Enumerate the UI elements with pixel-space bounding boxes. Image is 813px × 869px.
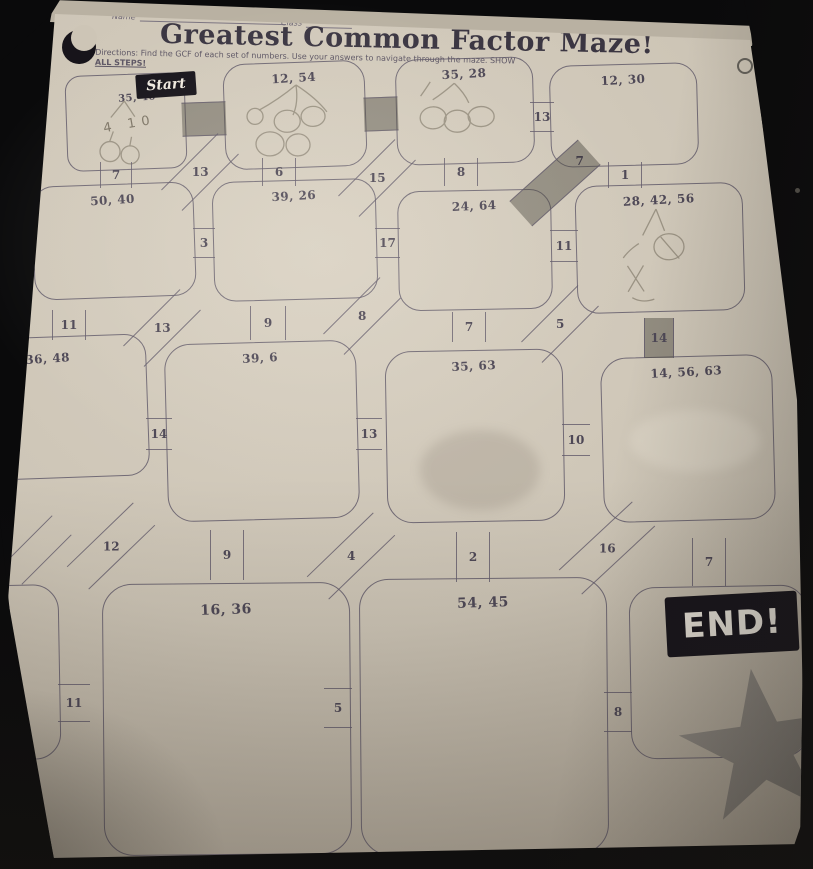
- maze-node-12-54: 12, 54: [222, 60, 368, 171]
- corridor-value: 8: [614, 705, 622, 719]
- maze-node-35-28: 35, 28: [395, 56, 536, 166]
- pen-mark: [62, 30, 92, 58]
- corridor-value: 2: [469, 550, 477, 564]
- node-pair: 35, 63: [386, 355, 562, 377]
- corridor-value: 1: [621, 168, 629, 182]
- end-badge: END!: [665, 591, 800, 658]
- corridor: 11: [58, 684, 90, 722]
- maze-node-39-6: 39, 6: [164, 340, 361, 523]
- corridor: 16: [559, 501, 655, 594]
- corridor-value: 9: [223, 548, 231, 562]
- maze-node-36-48: 36, 48: [0, 333, 150, 481]
- corridor: 11: [52, 310, 86, 340]
- corridor: 14: [146, 418, 172, 450]
- corridor-value: 3: [200, 236, 208, 250]
- corridor-value: 7: [705, 555, 713, 569]
- corridor: 12: [67, 503, 155, 590]
- corridor-value: 8: [358, 309, 366, 323]
- corridor-value: 4: [347, 549, 355, 563]
- corridor-value: 13: [154, 321, 171, 335]
- corridor: 10: [562, 424, 590, 456]
- corridor: 3: [193, 228, 215, 258]
- corridor-value: 6: [275, 165, 283, 179]
- corridor: 5: [324, 688, 352, 728]
- corridor-value: 11: [61, 318, 78, 332]
- corridor-value: 7: [112, 168, 120, 182]
- corridor-value: 11: [556, 239, 573, 253]
- glare-ring: [737, 58, 753, 74]
- corridor: 8: [604, 692, 632, 732]
- corridor-value: 11: [66, 696, 83, 710]
- corridor: 7: [692, 538, 726, 586]
- corridor: 6: [262, 158, 296, 186]
- pencil-work: [396, 57, 537, 167]
- node-pair: 39, 6: [165, 346, 355, 370]
- node-pair: 12, 30: [550, 69, 697, 91]
- corridor-value: 13: [534, 110, 551, 124]
- glare-dot: [795, 188, 800, 193]
- corridor: 9: [210, 530, 244, 580]
- corridor: 9: [250, 306, 286, 340]
- corridor: 1: [608, 162, 642, 188]
- corridor-value: 12: [103, 539, 120, 553]
- corridor-value: 16: [599, 541, 616, 555]
- node-pair: 54, 45: [360, 591, 606, 616]
- corridor: 2: [456, 532, 490, 582]
- corridor: 13: [356, 418, 382, 450]
- corridor-value: 14: [651, 331, 668, 345]
- corridor: [2, 515, 71, 584]
- directions-line2: ALL STEPS!: [95, 58, 146, 68]
- corridor: 11: [550, 230, 578, 262]
- worksheet-paper: Name Class Date Greatest Common Factor M…: [0, 0, 813, 869]
- maze-node-left-edge: [0, 584, 62, 761]
- corridor: [363, 96, 398, 131]
- corridor-value: 17: [379, 236, 396, 250]
- corridor: [181, 101, 226, 137]
- corridor-value: 5: [556, 317, 564, 331]
- corridor-value: 13: [192, 165, 209, 179]
- maze-node-35-63: 35, 63: [385, 348, 566, 523]
- corridor-value: 15: [369, 171, 386, 185]
- corridor-value: 9: [264, 316, 272, 330]
- start-badge: Start: [135, 71, 197, 99]
- corridor-value: 7: [465, 320, 473, 334]
- corridor: 7: [100, 162, 132, 188]
- corridor-value: 8: [457, 165, 465, 179]
- corridor-value: 13: [361, 427, 378, 441]
- corridor: 7: [452, 312, 486, 342]
- corridor-value: 7: [575, 154, 583, 168]
- corridor-value: 10: [568, 433, 585, 447]
- corridor-value: 14: [151, 427, 168, 441]
- corridor-value: 5: [334, 701, 342, 715]
- maze-node-54-45: 54, 45: [359, 577, 609, 856]
- corridor: 8: [444, 158, 478, 186]
- maze-node-14-56-63: 14, 56, 63: [600, 354, 776, 523]
- pencil-work: [223, 61, 369, 172]
- worksheet-photo: Name Class Date Greatest Common Factor M…: [0, 0, 813, 869]
- pencil-work: [575, 183, 746, 315]
- node-pair: 16, 36: [103, 598, 349, 623]
- corridor: 17: [375, 228, 400, 258]
- corridor: 14: [644, 318, 674, 358]
- maze-node-28-42-56: 28, 42, 56: [574, 182, 745, 314]
- node-pair: 36, 48: [25, 350, 71, 367]
- node-pair: 14, 56, 63: [601, 361, 771, 384]
- maze-node-16-36: 16, 36: [102, 582, 352, 856]
- corridor: 13: [530, 102, 554, 132]
